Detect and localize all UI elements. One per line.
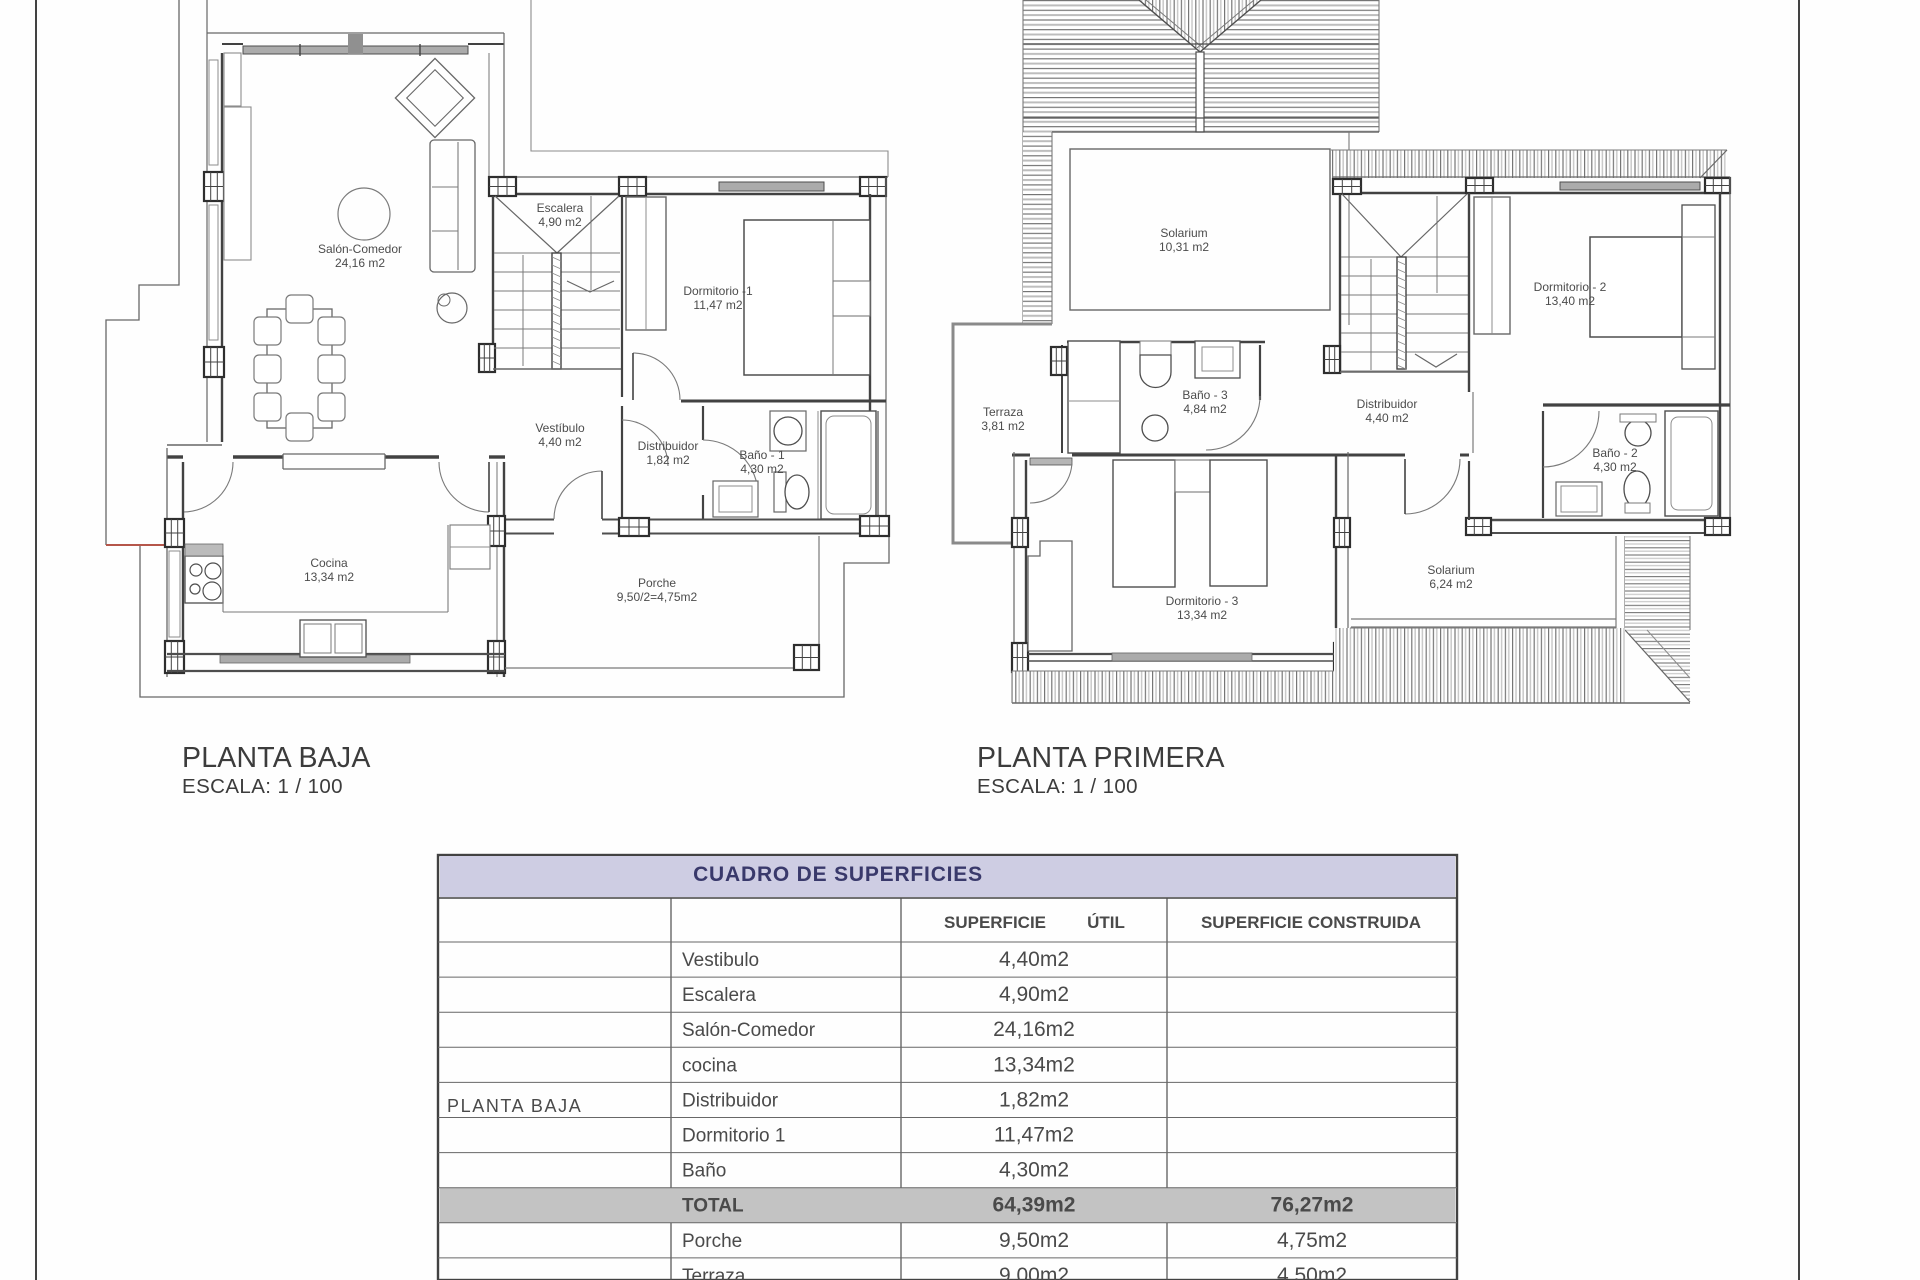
svg-text:Solarium: Solarium bbox=[1427, 563, 1474, 577]
svg-text:Baño - 2: Baño - 2 bbox=[1592, 446, 1638, 460]
svg-text:Solarium: Solarium bbox=[1160, 226, 1207, 240]
svg-text:1,82m2: 1,82m2 bbox=[999, 1088, 1069, 1111]
svg-text:PLANTA BAJA: PLANTA BAJA bbox=[182, 742, 371, 774]
svg-text:6,24 m2: 6,24 m2 bbox=[1429, 577, 1473, 591]
svg-text:Cocina: Cocina bbox=[310, 556, 348, 570]
svg-text:4,40 m2: 4,40 m2 bbox=[538, 435, 582, 449]
svg-text:4,40m2: 4,40m2 bbox=[999, 948, 1069, 971]
svg-text:9,00m2: 9,00m2 bbox=[999, 1264, 1069, 1280]
svg-text:Vestibulo: Vestibulo bbox=[682, 950, 759, 971]
svg-text:Escalera: Escalera bbox=[537, 201, 584, 215]
svg-text:SUPERFICIE CONSTRUIDA: SUPERFICIE CONSTRUIDA bbox=[1201, 913, 1421, 932]
svg-text:13,34m2: 13,34m2 bbox=[993, 1053, 1075, 1076]
svg-text:13,34 m2: 13,34 m2 bbox=[1177, 608, 1227, 622]
svg-text:Terraza: Terraza bbox=[682, 1266, 746, 1280]
svg-text:TOTAL: TOTAL bbox=[682, 1196, 744, 1217]
svg-text:Salón-Comedor: Salón-Comedor bbox=[318, 242, 402, 256]
svg-text:PLANTA PRIMERA: PLANTA PRIMERA bbox=[977, 742, 1225, 774]
svg-text:13,40 m2: 13,40 m2 bbox=[1545, 294, 1595, 308]
svg-text:4,50m2: 4,50m2 bbox=[1277, 1264, 1347, 1280]
svg-text:24,16 m2: 24,16 m2 bbox=[335, 256, 385, 270]
svg-text:24,16m2: 24,16m2 bbox=[993, 1018, 1075, 1041]
svg-text:CUADRO DE SUPERFICIES: CUADRO DE SUPERFICIES bbox=[693, 863, 983, 886]
svg-text:Salón-Comedor: Salón-Comedor bbox=[682, 1020, 816, 1041]
svg-text:10,31 m2: 10,31 m2 bbox=[1159, 240, 1209, 254]
svg-text:Dormitorio -1: Dormitorio -1 bbox=[683, 284, 753, 298]
svg-text:9,50/2=4,75m2: 9,50/2=4,75m2 bbox=[617, 590, 698, 604]
svg-text:Dormitorio - 2: Dormitorio - 2 bbox=[1534, 280, 1607, 294]
svg-text:Vestíbulo: Vestíbulo bbox=[535, 421, 585, 435]
svg-text:Baño - 1: Baño - 1 bbox=[739, 448, 785, 462]
svg-text:Distribuidor: Distribuidor bbox=[638, 439, 699, 453]
svg-text:13,34 m2: 13,34 m2 bbox=[304, 570, 354, 584]
svg-text:Baño - 3: Baño - 3 bbox=[1182, 388, 1228, 402]
svg-text:Porche: Porche bbox=[682, 1231, 742, 1252]
svg-text:76,27m2: 76,27m2 bbox=[1271, 1194, 1354, 1217]
svg-text:cocina: cocina bbox=[682, 1055, 737, 1076]
svg-text:4,75m2: 4,75m2 bbox=[1277, 1229, 1347, 1252]
svg-text:Escalera: Escalera bbox=[682, 985, 756, 1006]
svg-text:Distribuidor: Distribuidor bbox=[1357, 397, 1418, 411]
svg-text:64,39m2: 64,39m2 bbox=[993, 1194, 1076, 1217]
svg-text:4,84 m2: 4,84 m2 bbox=[1183, 402, 1227, 416]
svg-text:ÚTIL: ÚTIL bbox=[1087, 913, 1125, 932]
svg-text:Baño: Baño bbox=[682, 1161, 726, 1182]
svg-text:1,82 m2: 1,82 m2 bbox=[646, 453, 690, 467]
svg-text:4,90 m2: 4,90 m2 bbox=[538, 215, 582, 229]
svg-text:ESCALA: 1 / 100: ESCALA: 1 / 100 bbox=[977, 775, 1138, 798]
svg-text:ESCALA: 1 / 100: ESCALA: 1 / 100 bbox=[182, 775, 343, 798]
svg-text:PLANTA BAJA: PLANTA BAJA bbox=[447, 1096, 582, 1116]
svg-text:3,81 m2: 3,81 m2 bbox=[981, 419, 1025, 433]
svg-text:4,30m2: 4,30m2 bbox=[999, 1159, 1069, 1182]
svg-text:4,40 m2: 4,40 m2 bbox=[1365, 411, 1409, 425]
svg-text:Dormitorio - 3: Dormitorio - 3 bbox=[1166, 594, 1239, 608]
svg-text:4,30 m2: 4,30 m2 bbox=[740, 462, 784, 476]
svg-text:4,30 m2: 4,30 m2 bbox=[1593, 460, 1637, 474]
svg-text:Distribuidor: Distribuidor bbox=[682, 1090, 779, 1111]
svg-text:11,47m2: 11,47m2 bbox=[994, 1124, 1074, 1147]
svg-text:9,50m2: 9,50m2 bbox=[999, 1229, 1069, 1252]
svg-text:Porche: Porche bbox=[638, 576, 676, 590]
svg-text:Dormitorio 1: Dormitorio 1 bbox=[682, 1126, 785, 1147]
svg-text:4,90m2: 4,90m2 bbox=[999, 983, 1069, 1006]
svg-text:11,47 m2: 11,47 m2 bbox=[693, 298, 742, 312]
svg-text:SUPERFICIE: SUPERFICIE bbox=[944, 913, 1046, 932]
svg-text:Terraza: Terraza bbox=[983, 405, 1023, 419]
